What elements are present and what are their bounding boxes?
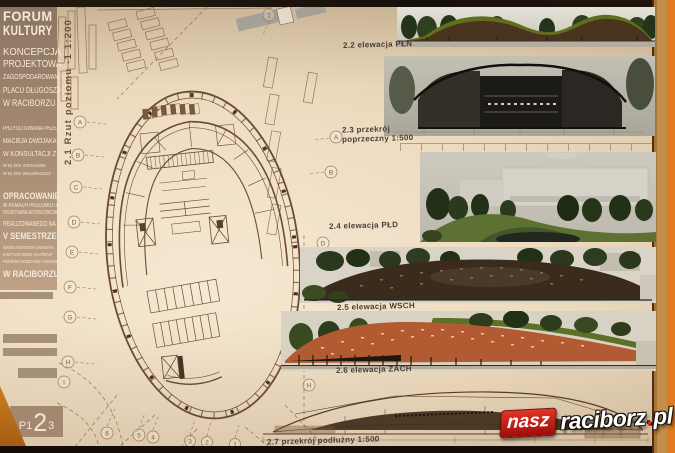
grid-letter: I [63, 380, 65, 387]
auditorium-horseshoe [104, 94, 288, 287]
watermark-badge: nasz [499, 408, 557, 439]
render-cross-section [384, 56, 655, 136]
grid-number: 5 [137, 433, 141, 440]
construction-lines [57, 7, 325, 447]
grid-letter: E [70, 250, 75, 257]
label-elevation-south: 2.4 elewacja PŁD [329, 220, 399, 231]
credits-line: DR INŻ. ARCH. JERZYM CIBISEM [3, 164, 46, 168]
grid-letter: C [74, 185, 79, 192]
stage-hatch [146, 150, 213, 169]
grid-letter: B [76, 153, 80, 160]
grid-letter: H [66, 360, 71, 367]
parking-rows [147, 279, 226, 347]
watermark-tld: pl [652, 402, 673, 430]
grid-letter: B [329, 170, 333, 177]
plan-title-vertical: 2.1 Rzut poziomu -1 1:200 [63, 19, 74, 165]
credits-line: MACIEJA DWOJAKA [3, 137, 56, 145]
subtitle-line: PLACU DŁUGOSZA [3, 86, 61, 95]
grid-letter: A [78, 120, 83, 127]
label-elevation-north: 2.2 elewacja PŁN [343, 39, 413, 50]
grid-letter: G [67, 315, 72, 322]
credits-line: W KONSULTACJI Z [3, 150, 56, 158]
subtitle-line: ZAGOSPODAROWANIA [3, 74, 63, 81]
subtitle-line: W RACIBORZU [3, 99, 55, 108]
presentation-board-photo: FORUM KULTURY KONCEPCJA PROJEKTOWA ZAGOS… [0, 0, 675, 453]
page-label-prefix: P1 [19, 418, 32, 436]
grid-letter: A [334, 135, 339, 142]
render-elevation-west [281, 311, 656, 371]
elaboration-line: W INSTYTUCIE TECHNIKI I ARCHITEKTURY [3, 253, 53, 257]
board-title-line1: FORUM [3, 9, 53, 23]
photo-background-bottom [0, 446, 675, 453]
building-plan-oval [90, 82, 315, 428]
elaboration-line: OPRACOWANIE [3, 192, 60, 201]
credits-line: PRZYGOTOWANA PRZEZ [3, 126, 59, 132]
elaboration-line: W RAMACH PRZEDMIOTU [3, 203, 59, 209]
stair-core-right [209, 215, 229, 244]
dimension-ruler [400, 143, 652, 151]
grid-letter: F [68, 285, 72, 292]
grid-letter: D [72, 220, 77, 227]
board-title-line2: KULTURY [3, 23, 53, 37]
render-elevation-east [300, 247, 656, 303]
ramp-cluster [161, 351, 222, 387]
subtitle-line: KONCEPCJA [3, 48, 61, 58]
page-label-suffix: 3 [48, 418, 54, 436]
sidebar-bar [3, 334, 57, 343]
credits-line: DR INŻ. ARCH. WIESŁAWEM OLEJKO [3, 172, 51, 176]
section-hall [480, 76, 562, 128]
elaboration-line: W RACIBORZU [3, 270, 59, 280]
floor-plan-drawing: A B C D E F G H I 6 5 4 3 2 1 1 A B D H [57, 7, 357, 447]
sidebar-bar [0, 292, 53, 299]
render-elevation-north [397, 7, 655, 47]
page-label-current: 2 [33, 411, 47, 436]
render-elevation-south [420, 152, 656, 242]
tree-right [626, 58, 654, 110]
elaboration-line: KIERUNKU ARCHITEKTURA I URBANISTYKA [3, 246, 54, 250]
tree-left [389, 66, 415, 114]
sidebar-bar [3, 348, 57, 356]
photo-background-top [0, 0, 675, 7]
elaboration-line: V SEMESTRZE [3, 232, 57, 242]
grid-number: 1 [267, 13, 271, 20]
elaboration-line: PROJEKTOWANIE ARCHITEKTONICZNE [3, 211, 58, 216]
elaboration-line: REALIZOWANEGO NA [3, 221, 56, 228]
site-context [57, 7, 327, 447]
stairs-band [159, 199, 212, 235]
watermark-site-name: raciborz [560, 403, 647, 434]
grid-number: 6 [105, 431, 109, 438]
elaboration-line: PAŃSTWOWEJ WYŻSZEJ SZKOŁY ZAWODOWEJ [3, 260, 59, 264]
sidebar-bar [18, 368, 57, 378]
grid-number: 4 [151, 435, 155, 442]
subtitle-line: PROJEKTOWA [3, 60, 61, 70]
grid-number: 3 [188, 439, 192, 446]
